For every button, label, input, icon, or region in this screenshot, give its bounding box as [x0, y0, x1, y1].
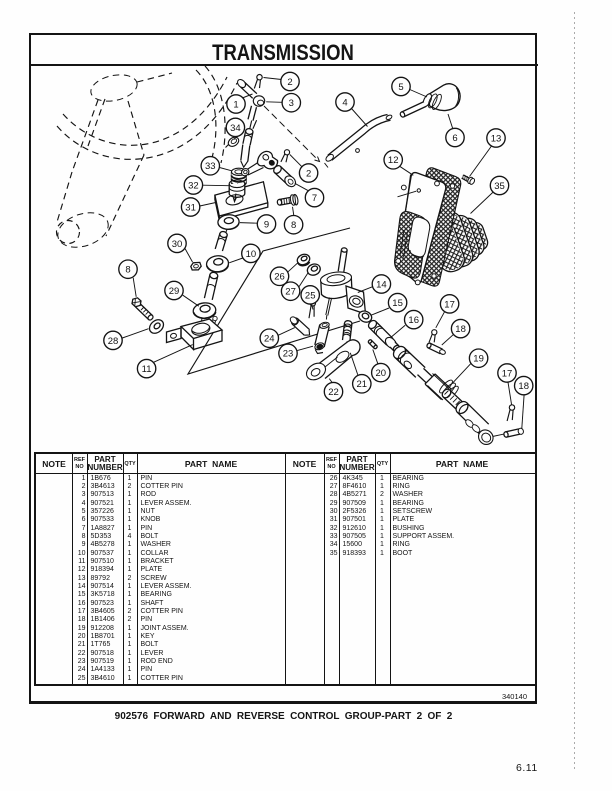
svg-text:33: 33 [205, 161, 216, 172]
svg-text:11: 11 [142, 364, 152, 375]
svg-text:6: 6 [452, 133, 457, 144]
svg-text:4: 4 [342, 97, 347, 108]
svg-text:25: 25 [305, 290, 316, 301]
svg-text:5: 5 [398, 82, 403, 93]
svg-text:20: 20 [376, 368, 387, 379]
svg-text:32: 32 [188, 180, 199, 191]
svg-text:18: 18 [518, 381, 529, 392]
svg-text:14: 14 [376, 279, 387, 290]
svg-text:7: 7 [312, 193, 317, 204]
svg-text:17: 17 [444, 299, 455, 310]
svg-text:21: 21 [357, 379, 368, 390]
svg-text:24: 24 [264, 334, 275, 345]
svg-text:35: 35 [494, 181, 505, 192]
svg-text:13: 13 [491, 133, 502, 144]
svg-text:9: 9 [264, 219, 269, 230]
svg-text:23: 23 [283, 349, 294, 360]
svg-text:30: 30 [172, 239, 183, 250]
svg-text:22: 22 [328, 387, 339, 398]
svg-text:34: 34 [230, 123, 241, 134]
svg-text:18: 18 [455, 324, 466, 335]
svg-text:15: 15 [392, 298, 403, 309]
svg-text:27: 27 [285, 287, 296, 298]
svg-text:28: 28 [108, 336, 119, 347]
svg-text:12: 12 [388, 155, 399, 166]
svg-text:2: 2 [306, 168, 311, 179]
svg-text:8: 8 [125, 265, 130, 276]
svg-text:16: 16 [408, 315, 419, 326]
svg-text:1: 1 [233, 99, 238, 110]
svg-text:17: 17 [502, 368, 513, 379]
svg-text:10: 10 [246, 249, 257, 260]
svg-text:19: 19 [473, 354, 484, 365]
svg-text:3: 3 [289, 98, 294, 109]
svg-text:29: 29 [169, 286, 180, 297]
svg-text:26: 26 [274, 272, 285, 283]
svg-text:31: 31 [185, 202, 196, 213]
svg-text:2: 2 [287, 77, 292, 88]
svg-text:8: 8 [291, 220, 296, 231]
